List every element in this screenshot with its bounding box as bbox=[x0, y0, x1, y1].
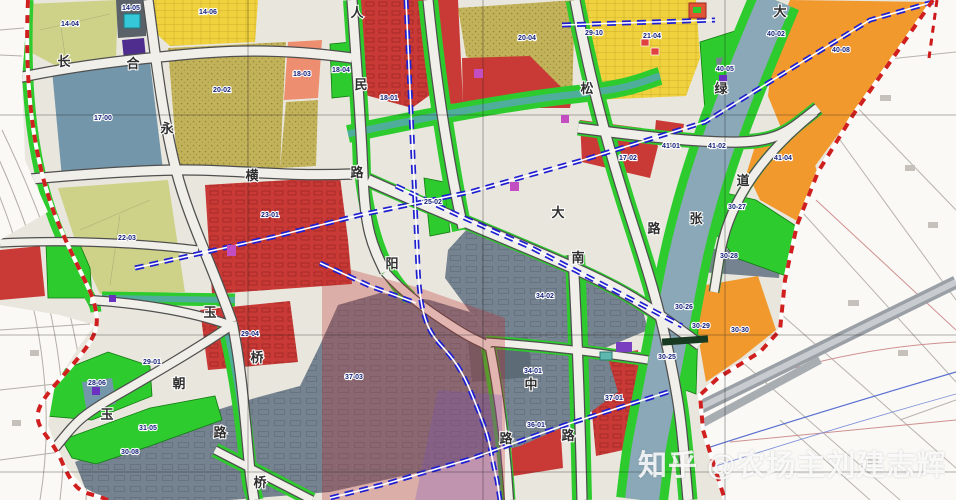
zoning-map-canvas: 14-0414-0514-0617-0020-0218-0318-0418-01… bbox=[0, 0, 956, 500]
road-name-char: 桥 bbox=[250, 350, 264, 365]
parcel-code-label: 22-03 bbox=[118, 235, 136, 242]
purple-parcel-icon bbox=[616, 342, 632, 352]
parcel-code-label: 20-02 bbox=[213, 87, 231, 94]
parcel-code-label: 29-04 bbox=[241, 331, 259, 338]
parcel-code-label: 18-03 bbox=[293, 71, 311, 78]
parcel-code-label: 29-01 bbox=[143, 359, 161, 366]
school-icon-3 bbox=[227, 245, 236, 256]
parcel-code-label: 31-05 bbox=[139, 425, 157, 432]
parcel-code-label: 30-30 bbox=[731, 327, 749, 334]
planning-map-image: 14-0414-0514-0617-0020-0218-0318-0418-01… bbox=[0, 0, 956, 500]
parcel-khaki-20-02 bbox=[168, 42, 286, 172]
road-name-char: 玉 bbox=[100, 407, 113, 422]
road-name-char: 永 bbox=[159, 121, 174, 136]
purple-icon-3 bbox=[109, 295, 116, 302]
school-icon-2 bbox=[510, 182, 519, 191]
parcel-code-label: 25-02 bbox=[424, 199, 442, 206]
parcel-code-label: 30-08 bbox=[121, 449, 139, 456]
road-name-char: 中 bbox=[524, 377, 537, 392]
road-name-char: 桥 bbox=[253, 475, 267, 490]
school-icon-1 bbox=[474, 69, 483, 78]
parcel-yellow-topleft bbox=[150, 0, 258, 46]
parcel-code-label: 30-26 bbox=[675, 304, 693, 311]
parcel-code-label: 41-02 bbox=[708, 143, 726, 150]
parcel-code-label: 14-05 bbox=[122, 5, 140, 12]
parcel-code-label: 23-01 bbox=[261, 212, 279, 219]
road-name-char: 人 bbox=[350, 5, 364, 20]
parcel-code-label: 14-04 bbox=[61, 21, 79, 28]
road-name-char: 阳 bbox=[385, 256, 398, 271]
road-name-char: 大 bbox=[773, 4, 786, 19]
parcel-code-label: 21-04 bbox=[643, 33, 661, 40]
parcel-code-label: 41-01 bbox=[662, 143, 680, 150]
school-icon-4 bbox=[561, 115, 569, 123]
road-name-char: 合 bbox=[126, 56, 140, 71]
parcel-code-label: 34-01 bbox=[524, 368, 542, 375]
road-name-char: 长 bbox=[57, 54, 71, 69]
parcel-code-label: 37-03 bbox=[345, 374, 363, 381]
road-name-char: 民 bbox=[354, 77, 367, 92]
parcel-code-label: 30-29 bbox=[692, 323, 710, 330]
road-name-char: 路 bbox=[499, 431, 513, 446]
road-name-char: 横 bbox=[245, 168, 259, 183]
parcel-red-left-edge bbox=[0, 246, 45, 300]
parcel-khaki-2 bbox=[280, 100, 318, 168]
parcel-code-label: 30-25 bbox=[658, 354, 676, 361]
red-mini-icon-1 bbox=[641, 39, 649, 46]
road-name-char: 玉 bbox=[203, 305, 216, 320]
road-name-char: 路 bbox=[213, 425, 227, 440]
red-green-icon bbox=[689, 3, 706, 18]
parcel-code-label: 30-27 bbox=[728, 204, 746, 211]
parcel-code-label: 29-10 bbox=[585, 30, 603, 37]
road-name-char: 松 bbox=[580, 81, 593, 96]
road-name-char: 路 bbox=[647, 221, 661, 236]
parcel-code-label: 37-01 bbox=[605, 395, 623, 402]
road-name-char: 道 bbox=[736, 173, 749, 188]
road-name-char: 路 bbox=[350, 165, 364, 180]
red-mini-icon-2 bbox=[651, 48, 659, 55]
parcel-code-label: 17-00 bbox=[94, 115, 112, 122]
road-name-char: 大 bbox=[551, 205, 564, 220]
parcel-code-label: 40-08 bbox=[832, 47, 850, 54]
parcel-code-label: 40-02 bbox=[767, 31, 785, 38]
parcel-code-label: 40-05 bbox=[716, 66, 734, 73]
watermark: 知乎 @农场主刘建志辉 bbox=[638, 442, 956, 484]
parcel-code-label: 34-02 bbox=[536, 293, 554, 300]
parcel-code-label: 36-01 bbox=[527, 422, 545, 429]
parcel-code-label: 18-01 bbox=[380, 95, 398, 102]
parcel-code-label: 14-06 bbox=[199, 9, 217, 16]
road-name-char: 朝 bbox=[172, 376, 185, 391]
parcel-code-label: 17-02 bbox=[619, 155, 637, 162]
road-name-char: 南 bbox=[571, 250, 584, 265]
road-name-char: 绿 bbox=[714, 81, 728, 96]
cyan-utility-icon bbox=[124, 14, 140, 28]
parcel-code-label: 41-04 bbox=[774, 155, 792, 162]
parcel-code-label: 28-06 bbox=[88, 380, 106, 387]
road-name-char: 路 bbox=[561, 428, 575, 443]
teal-icon bbox=[600, 352, 612, 360]
parcel-code-label: 18-04 bbox=[332, 67, 350, 74]
parcel-code-label: 30-28 bbox=[720, 253, 738, 260]
purple-icon-2 bbox=[92, 387, 100, 395]
road-name-char: 张 bbox=[689, 211, 703, 226]
parcel-code-label: 20-04 bbox=[518, 35, 536, 42]
